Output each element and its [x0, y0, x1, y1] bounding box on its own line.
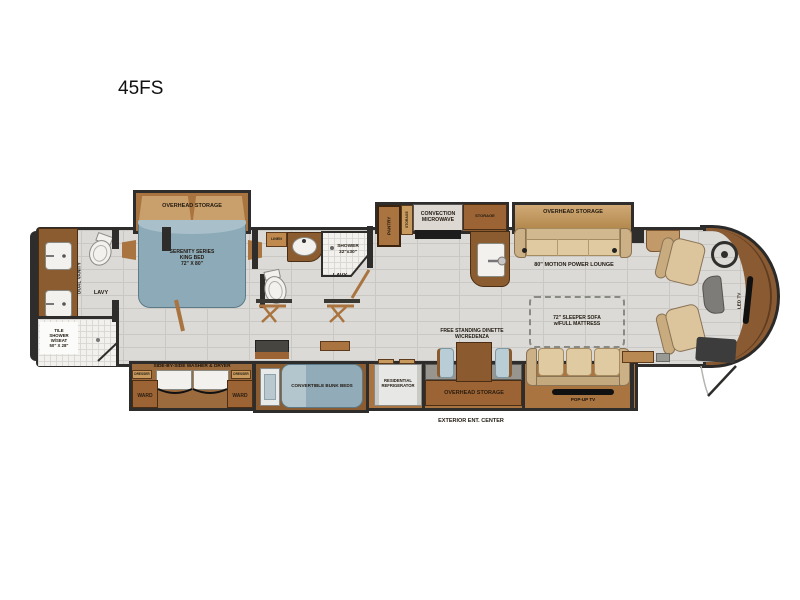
- detail-overlay: [0, 0, 800, 600]
- rear-shower-door: [98, 343, 117, 361]
- vanity-faucet-icon: [46, 254, 66, 306]
- floorplan-page: { "title": "45FS", "bedroom": { "overhea…: [0, 0, 800, 600]
- mid-shower-outline: [322, 232, 369, 276]
- galley-faucet-icon: [488, 257, 506, 265]
- folding-chair-icon: [324, 301, 360, 322]
- entry-door-swing: [701, 366, 736, 396]
- bedroom-door: [176, 300, 183, 331]
- folding-chair-icon: [256, 301, 292, 322]
- washer-door-arcs: [158, 389, 227, 393]
- mid-bath-door: [352, 270, 369, 298]
